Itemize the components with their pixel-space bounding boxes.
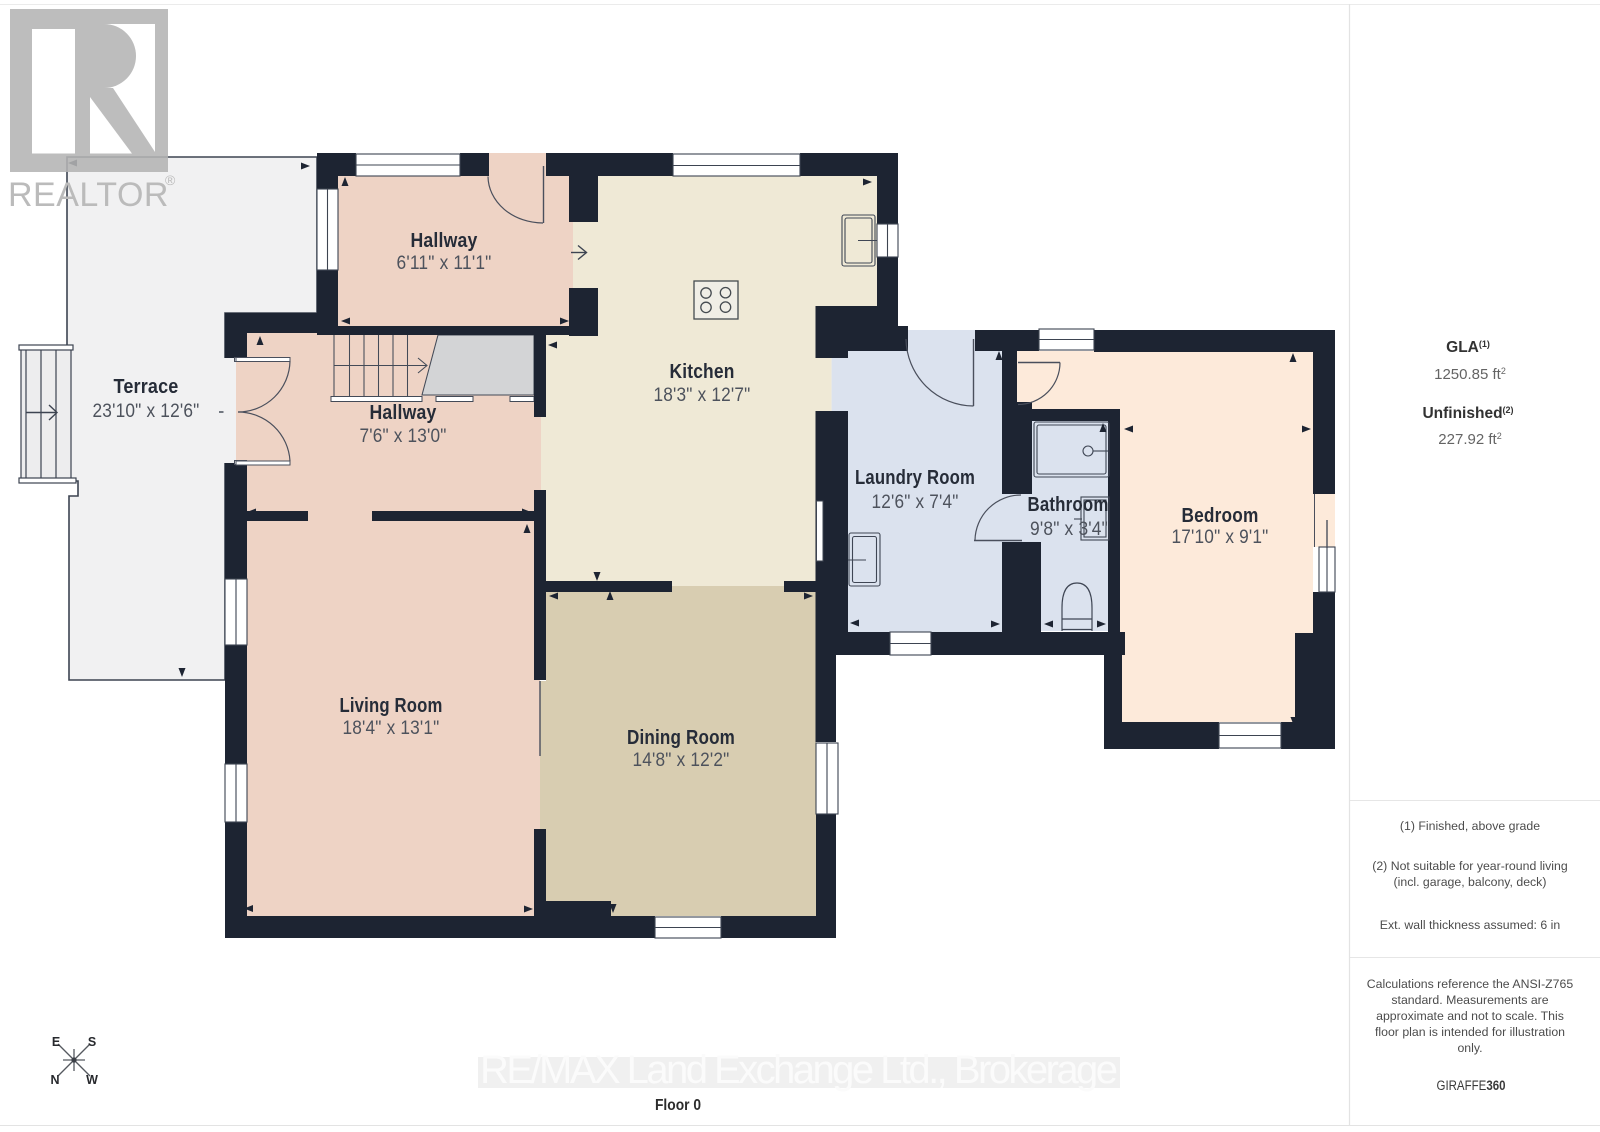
svg-text:Ext. wall thickness assumed: 6: Ext. wall thickness assumed: 6 in: [1380, 918, 1561, 932]
svg-text:Laundry Room: Laundry Room: [855, 467, 975, 489]
svg-text:Kitchen: Kitchen: [670, 361, 735, 383]
svg-text:18'4" x 13'1": 18'4" x 13'1": [343, 718, 440, 739]
svg-text:14'8" x 12'2": 14'8" x 12'2": [633, 750, 730, 771]
svg-text:Dining Room: Dining Room: [627, 727, 735, 749]
svg-text:Bedroom: Bedroom: [1182, 505, 1259, 527]
svg-text:GLA(1): GLA(1): [1446, 339, 1490, 356]
svg-text:REALTOR: REALTOR: [8, 176, 169, 214]
svg-text:18'3" x 12'7": 18'3" x 12'7": [654, 385, 751, 406]
svg-text:Calculations reference the ANS: Calculations reference the ANSI-Z765: [1367, 977, 1574, 991]
svg-text:Floor 0: Floor 0: [655, 1097, 701, 1114]
svg-text:Unfinished(2): Unfinished(2): [1422, 405, 1513, 422]
svg-text:6'11" x 11'1": 6'11" x 11'1": [397, 253, 492, 274]
svg-text:standard. Measurements are: standard. Measurements are: [1391, 993, 1548, 1007]
svg-text:227.92 ft2: 227.92 ft2: [1438, 431, 1501, 448]
svg-text:RE/MAX Land Exchange Ltd., Bro: RE/MAX Land Exchange Ltd., Brokerage: [480, 1048, 1118, 1092]
svg-text:Living Room: Living Room: [340, 695, 443, 717]
svg-text:®: ®: [165, 172, 176, 188]
svg-text:7'6" x 13'0": 7'6" x 13'0": [360, 426, 447, 447]
svg-text:W: W: [86, 1073, 98, 1087]
svg-text:23'10" x 12'6": 23'10" x 12'6": [93, 401, 200, 422]
svg-text:floor plan is intended for ill: floor plan is intended for illustration: [1375, 1025, 1565, 1039]
svg-text:approximate and not to scale.: approximate and not to scale. This: [1376, 1009, 1564, 1023]
svg-text:17'10" x 9'1": 17'10" x 9'1": [1172, 527, 1269, 548]
svg-text:S: S: [88, 1035, 96, 1049]
svg-text:12'6" x 7'4": 12'6" x 7'4": [872, 492, 959, 513]
svg-text:only.: only.: [1457, 1041, 1482, 1055]
svg-text:Terrace: Terrace: [114, 376, 179, 398]
svg-text:GIRAFFE360: GIRAFFE360: [1437, 1078, 1506, 1093]
svg-text:E: E: [52, 1035, 60, 1049]
svg-text:Bathroom: Bathroom: [1028, 494, 1109, 516]
svg-text:9'8" x 3'4": 9'8" x 3'4": [1030, 519, 1108, 540]
svg-text:(incl. garage, balcony, deck): (incl. garage, balcony, deck): [1394, 875, 1547, 889]
svg-text:(1) Finished, above grade: (1) Finished, above grade: [1400, 819, 1540, 833]
svg-text:N: N: [50, 1073, 59, 1087]
svg-text:1250.85 ft2: 1250.85 ft2: [1434, 366, 1506, 383]
svg-text:Hallway: Hallway: [411, 230, 479, 252]
svg-text:(2) Not suitable for year-roun: (2) Not suitable for year-round living: [1372, 859, 1568, 873]
svg-text:Hallway: Hallway: [370, 402, 438, 424]
